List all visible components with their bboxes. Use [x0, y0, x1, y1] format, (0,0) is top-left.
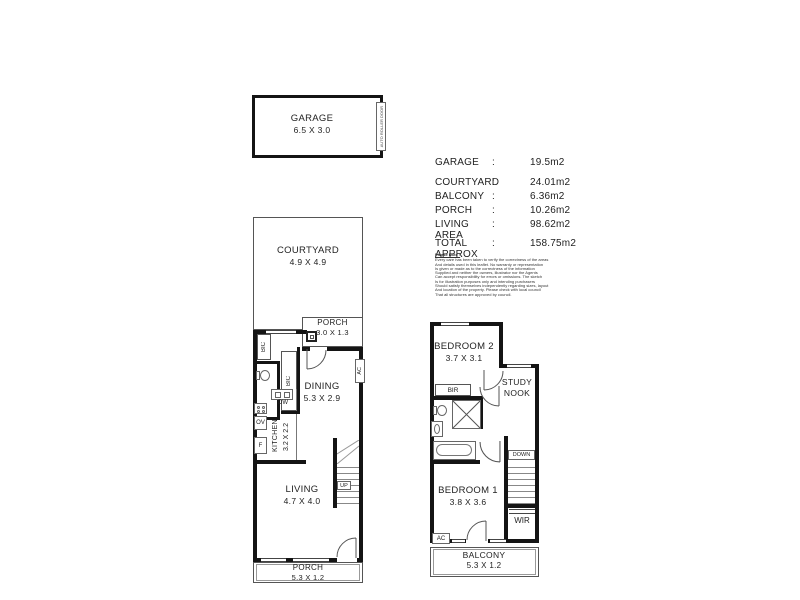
area-row-courtyard: COURTYARD : 24.01m2: [435, 177, 595, 188]
area-label: GARAGE: [435, 157, 492, 168]
stairs-down: [508, 462, 535, 504]
bedroom1-door-arc: [479, 441, 501, 463]
garage-name: GARAGE: [262, 113, 362, 125]
down-label: DOWN: [513, 452, 530, 458]
auto-roller-door: AUTO ROLLER DOOR: [376, 102, 386, 151]
ac-unit-upper: AC: [432, 533, 450, 544]
porch-bottom-label: PORCH 5.3 X 1.2: [258, 563, 358, 582]
window: [490, 539, 506, 543]
balcony-dims: 5.3 X 1.2: [434, 561, 534, 571]
wall: [499, 322, 503, 368]
porch-bottom-dims: 5.3 X 1.2: [258, 573, 358, 582]
study-nook-line1: STUDY: [497, 377, 537, 388]
living-dims: 4.7 X 4.0: [262, 496, 342, 507]
toilet-icon: [260, 370, 270, 381]
basin-icon: [431, 421, 443, 437]
window: [507, 364, 531, 368]
fridge-label: F: [259, 443, 263, 449]
area-label: BALCONY: [435, 191, 492, 202]
shower-icon: [452, 400, 481, 429]
area-row-garage: GARAGE : 19.5m2: [435, 157, 595, 168]
porch-top-name: PORCH: [303, 318, 362, 328]
wall: [430, 460, 480, 464]
bedroom2-name: BEDROOM 2: [431, 341, 497, 353]
balcony-door-arc: [466, 520, 487, 541]
porch-top-label: PORCH 3.0 X 1.3: [303, 318, 362, 337]
area-value: 10.26m2: [530, 205, 595, 216]
floor-plan-page: GARAGE 6.5 X 3.0 AUTO ROLLER DOOR GARAGE…: [0, 0, 800, 600]
cooktop-icon: [254, 403, 267, 414]
area-table: GARAGE : 19.5m2 COURTYARD : 24.01m2 BALC…: [435, 157, 600, 257]
bir-label: BIR: [448, 387, 459, 394]
wall: [504, 504, 539, 508]
window: [293, 558, 329, 562]
wall: [253, 460, 306, 464]
courtyard-label: COURTYARD 4.9 X 4.9: [258, 245, 358, 268]
window: [266, 330, 296, 334]
entry-door-arc: [306, 349, 327, 370]
oven-label: OV: [256, 420, 265, 426]
area-label: PORCH: [435, 205, 492, 216]
area-colon: :: [492, 191, 530, 202]
courtyard-dims: 4.9 X 4.9: [258, 257, 358, 268]
oven-icon: OV: [254, 416, 267, 430]
kitchen-name: KITCHEN: [272, 408, 279, 464]
bic-closet-1: BIC: [257, 334, 271, 360]
courtyard-name: COURTYARD: [258, 245, 358, 257]
courtyard-outline: [253, 217, 363, 330]
area-colon: :: [492, 157, 530, 168]
area-row-porch: PORCH : 10.26m2: [435, 205, 595, 216]
dishwasher-label: DW: [275, 400, 291, 406]
ac-upper-label: AC: [437, 536, 445, 542]
window: [441, 322, 469, 326]
balcony-label: BALCONY 5.3 X 1.2: [434, 550, 534, 571]
area-value: 19.5m2: [530, 157, 595, 168]
area-value: 24.01m2: [530, 177, 595, 188]
area-row-balcony: BALCONY : 6.36m2: [435, 191, 595, 202]
disclaimer: Please Note : Every care has been taken …: [435, 253, 555, 297]
bic-label: BIC: [261, 342, 267, 352]
sink-icon: [271, 389, 293, 400]
area-value: 6.36m2: [530, 191, 595, 202]
dining-label: DINING 5.3 X 2.9: [292, 381, 352, 404]
disclaimer-line: That all structures are approved by coun…: [435, 293, 555, 297]
porch-door-arc: [336, 537, 357, 558]
ac-label: AC: [357, 367, 363, 375]
ac-unit: AC: [355, 359, 365, 383]
dining-name: DINING: [292, 381, 352, 393]
living-label: LIVING 4.7 X 4.0: [262, 484, 342, 507]
bir-closet: BIR: [435, 384, 471, 396]
bedroom1-name: BEDROOM 1: [430, 485, 506, 497]
dining-dims: 5.3 X 2.9: [292, 393, 352, 404]
bedroom1-label: BEDROOM 1 3.8 X 3.6: [430, 485, 506, 508]
wir-label: WIR: [508, 516, 536, 525]
wall: [253, 361, 279, 364]
kitchen-dims: 3.2 X 2.2: [283, 412, 290, 462]
garage-label: GARAGE 6.5 X 3.0: [262, 113, 362, 136]
bedroom2-label: BEDROOM 2 3.7 X 3.1: [431, 341, 497, 364]
garage-dims: 6.5 X 3.0: [262, 125, 362, 136]
porch-bottom-name: PORCH: [258, 563, 358, 573]
study-nook-label: STUDY NOOK: [497, 377, 537, 398]
bathtub-icon: [433, 441, 476, 460]
fridge-icon: F: [254, 437, 267, 454]
area-label: COURTYARD: [435, 177, 492, 188]
wall: [327, 347, 363, 351]
window: [452, 539, 465, 543]
stair-winder-lines: [337, 440, 359, 464]
bedroom2-dims: 3.7 X 3.1: [431, 353, 497, 364]
study-nook-line2: NOOK: [497, 388, 537, 399]
living-name: LIVING: [262, 484, 342, 496]
bedroom1-dims: 3.8 X 3.6: [430, 497, 506, 508]
wir-shelf: [509, 509, 535, 514]
window: [261, 558, 286, 562]
down-label-box: DOWN: [508, 450, 535, 460]
toilet-icon: [437, 405, 447, 416]
wall: [357, 558, 363, 562]
area-colon: :: [492, 205, 530, 216]
auto-roller-door-label: AUTO ROLLER DOOR: [379, 106, 384, 147]
area-colon: :: [492, 177, 530, 188]
balcony-name: BALCONY: [434, 550, 534, 561]
porch-top-dims: 3.0 X 1.3: [303, 328, 362, 337]
